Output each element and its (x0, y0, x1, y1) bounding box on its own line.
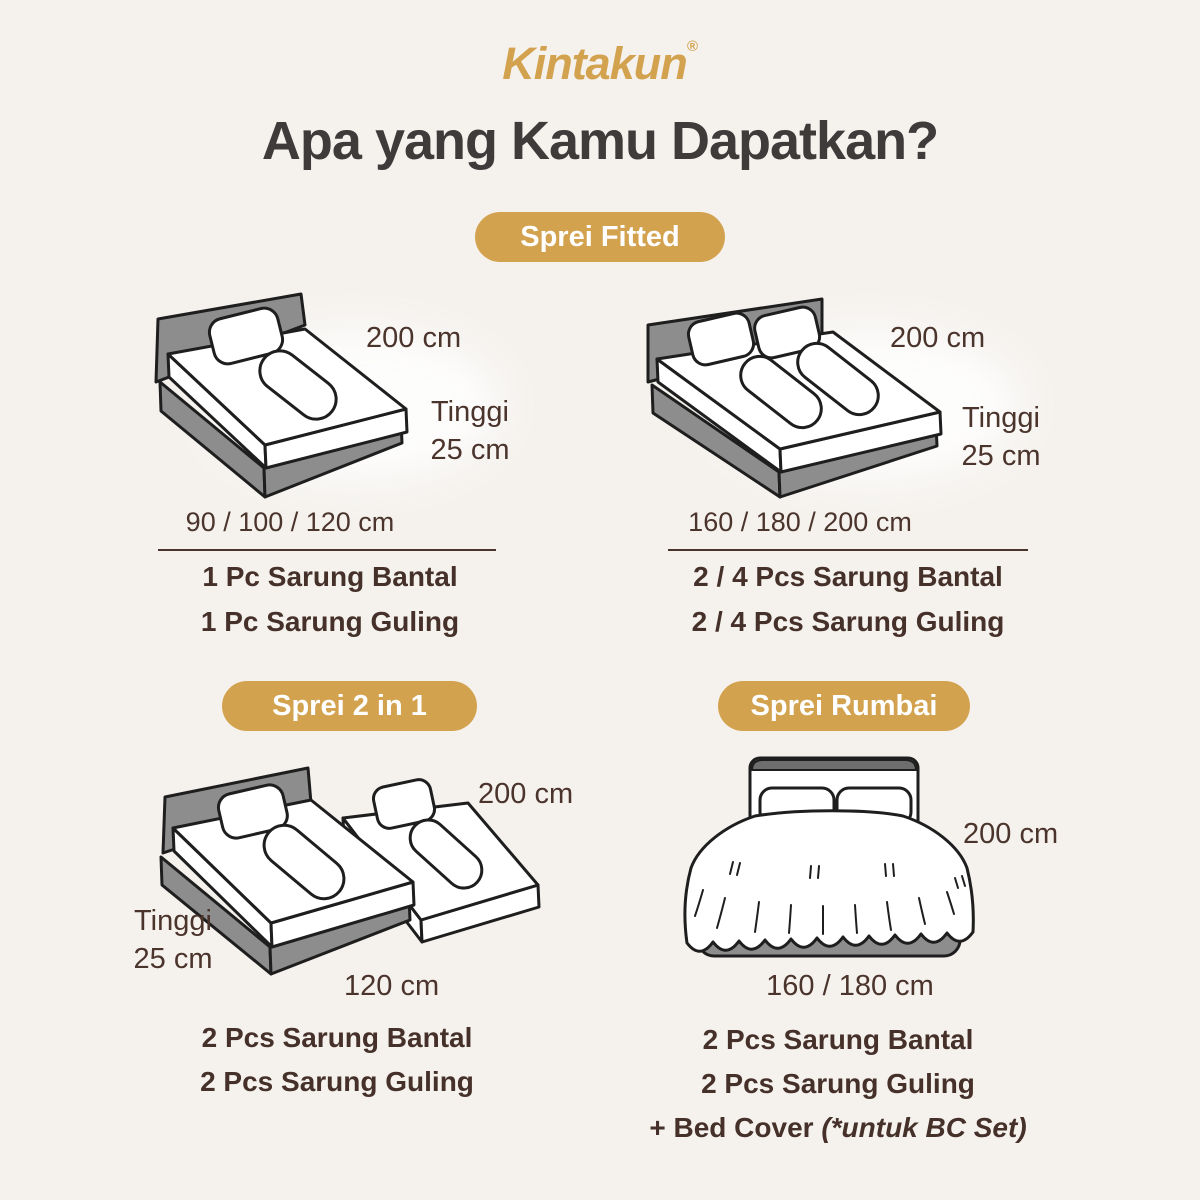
double-contents-line: 2 / 4 Pcs Sarung Bantal (648, 561, 1048, 593)
badge-sprei-fitted: Sprei Fitted (475, 212, 725, 262)
single-width-label: 200 cm (366, 322, 461, 355)
registered-trademark-icon: ® (687, 38, 698, 55)
kintakun-product-infographic: Kintakun® Apa yang Kamu Dapatkan? Sprei … (0, 0, 1200, 1200)
two-in-one-contents-line: 2 Pcs Sarung Bantal (137, 1022, 537, 1054)
double-sizes-label: 160 / 180 / 200 cm (600, 507, 1000, 538)
bedcover-note-italic: (*untuk BC Set) (821, 1112, 1026, 1143)
badge-sprei-rumbai: Sprei Rumbai (718, 681, 970, 731)
brand-logo: Kintakun® (0, 38, 1200, 90)
brand-name: Kintakun (502, 38, 687, 89)
single-height-label: Tinggi 25 cm (424, 393, 516, 469)
illustration-rumbai-bed (663, 750, 993, 1000)
badge-sprei-2-in-1: Sprei 2 in 1 (222, 681, 477, 731)
two-in-one-width-label: 200 cm (478, 778, 573, 811)
page-title: Apa yang Kamu Dapatkan? (0, 110, 1200, 172)
bed-skirt (685, 811, 973, 952)
divider-line (668, 549, 1028, 551)
divider-line (158, 549, 496, 551)
rumbai-bedcover-note: + Bed Cover (*untuk BC Set) (638, 1112, 1038, 1144)
rumbai-contents-line: 2 Pcs Sarung Guling (638, 1068, 1038, 1100)
two-in-one-height-label: Tinggi 25 cm (129, 902, 217, 978)
illustration-single-bed (138, 285, 438, 505)
headboard-top-rail (752, 760, 916, 770)
two-in-one-length-label: 120 cm (344, 970, 434, 1003)
double-contents-line: 2 / 4 Pcs Sarung Guling (648, 606, 1048, 638)
double-height-label: Tinggi 25 cm (956, 399, 1046, 475)
single-sizes-label: 90 / 100 / 120 cm (90, 507, 490, 538)
single-contents-line: 1 Pc Sarung Bantal (130, 561, 530, 593)
rumbai-contents-line: 2 Pcs Sarung Bantal (638, 1024, 1038, 1056)
illustration-double-bed (640, 285, 960, 505)
two-in-one-contents-line: 2 Pcs Sarung Guling (137, 1066, 537, 1098)
rumbai-size-label: 160 / 180 cm (650, 970, 1050, 1003)
single-contents-line: 1 Pc Sarung Guling (130, 606, 530, 638)
rumbai-width-label: 200 cm (963, 818, 1058, 851)
double-width-label: 200 cm (890, 322, 985, 355)
